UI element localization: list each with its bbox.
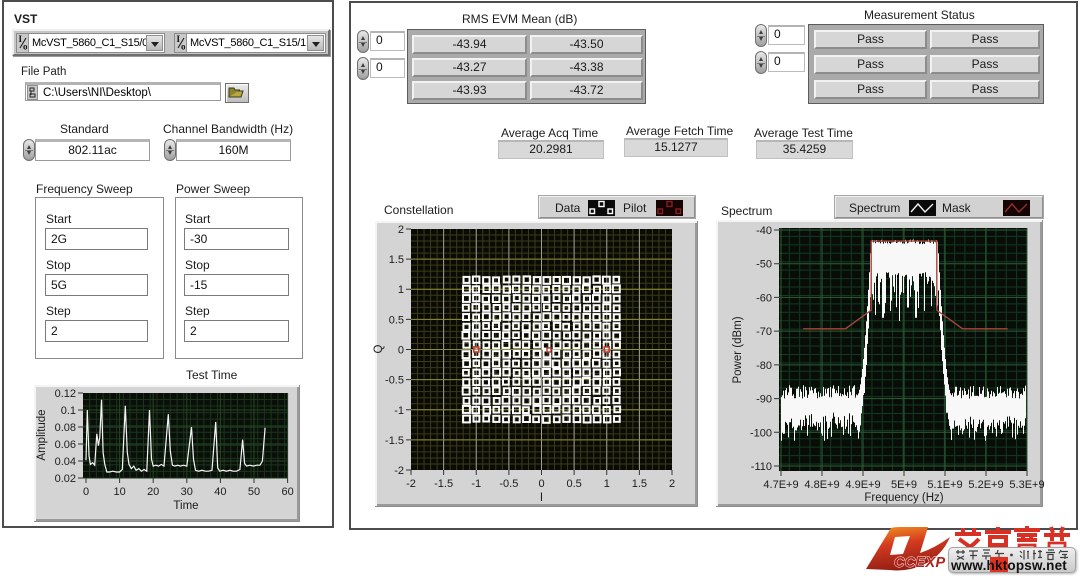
svg-text:o: o xyxy=(23,42,28,52)
svg-text:0: 0 xyxy=(398,345,404,357)
svg-text:1: 1 xyxy=(604,478,610,490)
svg-text:-1: -1 xyxy=(394,405,404,417)
svg-text:-70: -70 xyxy=(756,326,772,338)
svg-text:5.1E+9: 5.1E+9 xyxy=(927,479,962,491)
svg-text:-110: -110 xyxy=(751,461,772,473)
svg-text:4.9E+9: 4.9E+9 xyxy=(845,479,880,491)
svg-text:-1.5: -1.5 xyxy=(434,478,453,490)
svg-text:-0.5: -0.5 xyxy=(385,375,404,387)
svg-text:-90: -90 xyxy=(756,394,772,406)
svg-text:o: o xyxy=(181,42,186,52)
svg-text:-100: -100 xyxy=(750,427,772,439)
svg-text:0.02: 0.02 xyxy=(55,473,76,485)
svg-text:-50: -50 xyxy=(756,259,772,271)
svg-text:50: 50 xyxy=(248,486,260,498)
svg-text:-60: -60 xyxy=(756,292,772,304)
svg-text:60: 60 xyxy=(281,486,293,498)
svg-text:Time: Time xyxy=(173,500,198,512)
svg-text:0.5: 0.5 xyxy=(566,478,581,490)
svg-text:I: I xyxy=(540,492,543,504)
svg-text:0.5: 0.5 xyxy=(389,314,404,326)
svg-text:-2: -2 xyxy=(406,478,416,490)
svg-text:-80: -80 xyxy=(756,360,772,372)
svg-text:0.1: 0.1 xyxy=(61,405,76,417)
svg-text:20: 20 xyxy=(147,486,159,498)
svg-text:4.8E+9: 4.8E+9 xyxy=(804,479,839,491)
svg-text:I: I xyxy=(19,34,23,44)
svg-text:I: I xyxy=(177,34,181,44)
svg-text:-40: -40 xyxy=(756,225,772,237)
svg-text:CCEXP: CCEXP xyxy=(894,555,945,571)
svg-text:1.5: 1.5 xyxy=(389,254,404,266)
svg-text:Amplitude: Amplitude xyxy=(36,409,48,460)
svg-text:4.7E+9: 4.7E+9 xyxy=(763,479,798,491)
svg-text:-0.5: -0.5 xyxy=(499,478,518,490)
svg-text:0.08: 0.08 xyxy=(55,422,76,434)
svg-text:Frequency (Hz): Frequency (Hz) xyxy=(864,492,943,504)
svg-text:-2: -2 xyxy=(394,465,404,477)
svg-text:30: 30 xyxy=(181,486,193,498)
svg-text:Q: Q xyxy=(373,344,385,353)
svg-text:0.06: 0.06 xyxy=(55,439,76,451)
svg-text:1.5: 1.5 xyxy=(632,478,647,490)
svg-text:0: 0 xyxy=(538,478,544,490)
svg-text:0: 0 xyxy=(83,486,89,498)
svg-text:1: 1 xyxy=(398,284,404,296)
svg-text:-1.5: -1.5 xyxy=(385,435,404,447)
svg-text:40: 40 xyxy=(214,486,226,498)
svg-text:10: 10 xyxy=(113,486,125,498)
svg-text:2: 2 xyxy=(398,224,404,236)
svg-text:5E+9: 5E+9 xyxy=(891,479,917,491)
svg-text:-1: -1 xyxy=(471,478,481,490)
svg-text:0.12: 0.12 xyxy=(55,388,76,400)
svg-text:5.3E+9: 5.3E+9 xyxy=(1009,479,1044,491)
svg-text:2: 2 xyxy=(669,478,675,490)
svg-text:5.2E+9: 5.2E+9 xyxy=(968,479,1003,491)
svg-text:Power (dBm): Power (dBm) xyxy=(732,316,744,383)
svg-text:0.04: 0.04 xyxy=(55,456,76,468)
